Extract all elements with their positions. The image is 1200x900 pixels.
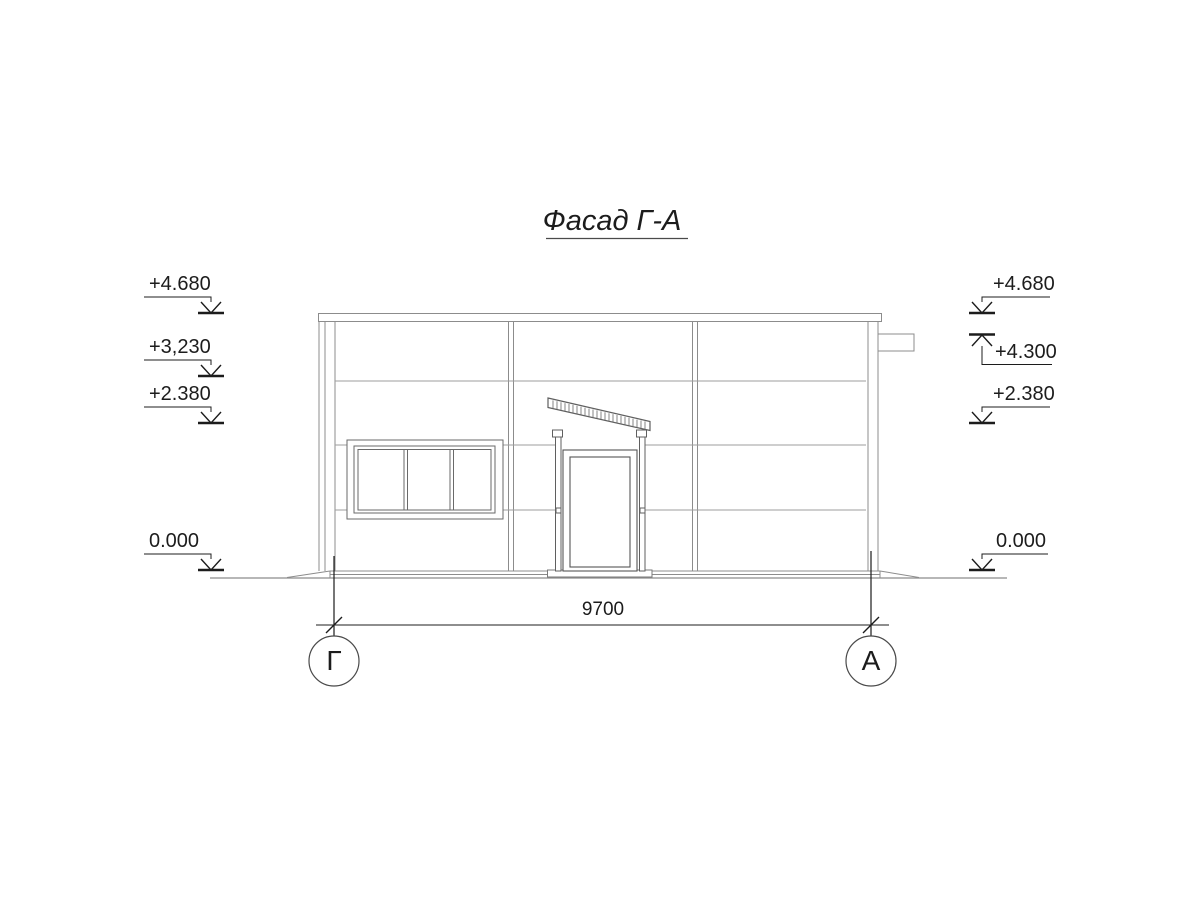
post-left <box>556 437 562 571</box>
roof-protrusion <box>878 334 914 351</box>
elevation-value-left-3: +2.380 <box>149 383 211 405</box>
mid-column-2 <box>693 322 698 572</box>
post-right <box>640 437 646 571</box>
elevation-value-left-2: +3,230 <box>149 336 211 358</box>
axis-label-right: А <box>846 644 896 678</box>
window-sash <box>358 450 491 511</box>
elevation-value-left-4: 0.000 <box>149 530 199 552</box>
axis-label-left: Г <box>309 644 359 678</box>
elevation-value-right-2: +4.300 <box>995 341 1057 363</box>
right-corner-column <box>868 322 878 572</box>
left-corner-column <box>319 322 335 572</box>
facade-linework <box>0 0 1200 900</box>
elevation-value-right-3: +2.380 <box>993 383 1055 405</box>
mid-column-1 <box>509 322 514 572</box>
left-apron-slope <box>287 571 330 578</box>
elevation-value-right-1: +4.680 <box>993 273 1055 295</box>
entrance-door <box>563 450 637 571</box>
window <box>347 440 503 519</box>
elevation-value-left-1: +4.680 <box>149 273 211 295</box>
elevation-value-right-4: 0.000 <box>996 530 1046 552</box>
drawing-title: Фасад Г-А <box>517 205 707 237</box>
facade-drawing-sheet: Фасад Г-А +4.680 +3,230 +2.380 0.000 +4.… <box>0 0 1200 900</box>
door-leaf <box>570 457 630 567</box>
right-apron-slope <box>880 571 919 578</box>
entrance <box>548 398 653 577</box>
post-cap-left <box>553 430 563 437</box>
dimension-value: 9700 <box>553 600 653 620</box>
post-cap-right <box>637 430 647 437</box>
door-canopy <box>548 398 650 431</box>
parapet-coping <box>319 314 882 322</box>
axis-bubbles <box>309 636 896 686</box>
